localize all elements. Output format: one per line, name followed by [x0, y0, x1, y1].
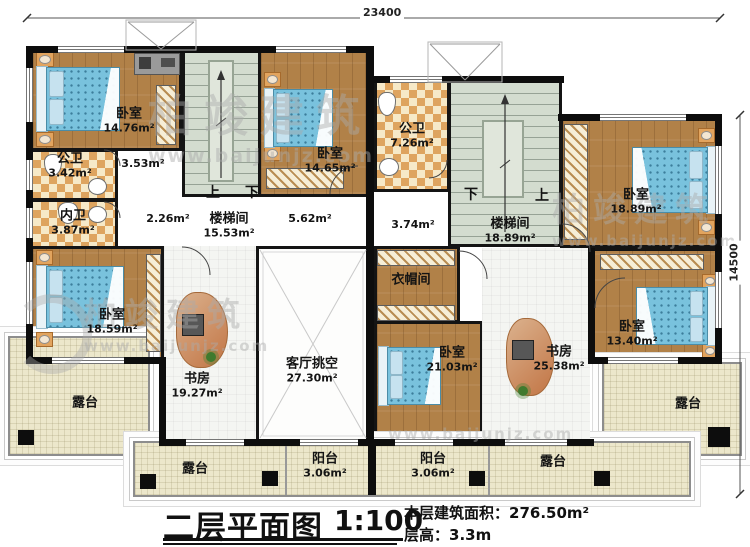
window-symbol: [390, 76, 442, 83]
window-symbol: [26, 68, 33, 122]
wall: [366, 46, 374, 446]
window-symbol: [505, 439, 567, 446]
strip-divider: [488, 443, 490, 495]
pillow: [49, 99, 64, 125]
floor-height-value: 3.3m: [449, 526, 491, 544]
pillow: [390, 351, 403, 375]
plan-info: 本层建筑面积：276.50m² 层高：3.3m: [404, 503, 589, 547]
plant-icon: [206, 352, 216, 362]
label-stair-left-up: 上: [206, 182, 220, 202]
label-terrace-bottom-left: 露台: [182, 463, 208, 478]
window-symbol: [26, 160, 33, 190]
floor-area-value: 276.50m²: [509, 504, 589, 522]
label-terrace-left: 露台: [72, 397, 98, 412]
window-symbol: [715, 146, 722, 214]
pillow: [276, 119, 290, 143]
label-study-right: 书房25.38m²: [533, 346, 584, 373]
window-symbol: [276, 46, 346, 53]
nightstand: [264, 146, 281, 161]
floor-plan-canvas: 柏竣建筑 www.baijunjz.com 柏竣建筑 www.baijunjz.…: [0, 0, 750, 547]
column: [18, 430, 34, 445]
label-study-left: 书房19.27m²: [171, 373, 222, 400]
label-hall-226: 2.26m²: [146, 213, 189, 225]
pillow: [49, 71, 64, 97]
watermark-logo-circle: [12, 294, 92, 374]
wall: [159, 357, 166, 446]
stair-left-center-panel: [208, 60, 234, 182]
pillow: [689, 151, 703, 179]
nightstand: [36, 52, 54, 67]
label-hall-353: 3.53m²: [121, 158, 164, 170]
closet-symbol: [564, 124, 588, 240]
nightstand: [698, 220, 715, 235]
pillow: [390, 375, 403, 399]
room-living-void: [256, 246, 370, 443]
closet-symbol: [377, 250, 455, 266]
sink-symbol: [379, 158, 399, 176]
window-symbol: [715, 272, 722, 328]
label-bedroom-top-right: 卧室18.89m²: [610, 189, 661, 216]
label-stairwell-right: 楼梯间18.89m²: [484, 218, 535, 245]
window-symbol: [58, 46, 124, 53]
pillow: [690, 291, 703, 316]
nightstand: [264, 72, 281, 87]
floor-height-line: 层高：3.3m: [404, 525, 589, 547]
closet-symbol: [156, 85, 176, 145]
title-underline: [163, 538, 403, 541]
sink-symbol: [88, 178, 107, 195]
strip-divider: [285, 443, 287, 495]
nightstand: [36, 250, 53, 265]
column: [140, 474, 156, 489]
nightstand: [698, 128, 715, 143]
label-terrace-right: 露台: [675, 398, 701, 413]
dimension-top: 23400: [360, 6, 404, 19]
label-hall-562: 5.62m²: [288, 213, 331, 225]
label-bedroom-top-middle: 卧室14.65m²: [304, 148, 355, 175]
label-stair-right-up: 上: [535, 185, 549, 205]
label-living-void: 客厅挑空27.30m²: [286, 358, 338, 385]
nightstand: [36, 132, 54, 147]
window-symbol: [608, 357, 678, 364]
window-symbol: [600, 114, 686, 121]
closet-symbol: [377, 305, 455, 321]
plant-icon: [518, 386, 528, 396]
stair-right-center-panel: [482, 120, 524, 198]
strip-party-wall: [368, 443, 376, 495]
column: [469, 471, 485, 486]
label-hall-374: 3.74m²: [391, 219, 434, 231]
label-balcony-left: 阳台3.06m²: [303, 453, 346, 480]
label-terrace-bottom-right: 露台: [540, 456, 566, 471]
pillow: [690, 317, 703, 342]
label-bath-public-right: 公卫7.26m²: [390, 123, 433, 150]
label-stair-right-down: 下: [464, 184, 478, 204]
label-stairwell-left: 楼梯间15.53m²: [203, 213, 254, 240]
label-bath-public-left: 公卫3.42m²: [48, 153, 91, 180]
title-underline: [163, 543, 397, 545]
computer-monitor: [512, 340, 534, 360]
dimension-right: 14500: [728, 240, 741, 284]
label-balcony-right: 阳台3.06m²: [411, 453, 454, 480]
label-bedroom-bottom-right: 卧室13.40m²: [606, 321, 657, 348]
pillow: [49, 270, 63, 296]
pillow: [689, 181, 703, 209]
floor-area-line: 本层建筑面积：276.50m²: [404, 503, 589, 525]
closet-symbol: [146, 254, 161, 352]
label-cloakroom: 衣帽间: [391, 274, 430, 289]
window-symbol: [26, 208, 33, 238]
label-stair-left-down: 下: [245, 182, 259, 202]
label-bedroom-bottom-left: 卧室18.59m²: [86, 309, 137, 336]
label-bath-inner: 内卫3.87m²: [51, 210, 94, 237]
pillow: [276, 93, 290, 117]
computer-desk: [134, 53, 180, 75]
column: [262, 471, 278, 486]
window-symbol: [395, 439, 453, 446]
label-bedroom-bottom-middle: 卧室21.03m²: [426, 347, 477, 374]
column: [594, 471, 610, 486]
closet-symbol: [600, 254, 704, 270]
column: [708, 427, 730, 447]
label-bedroom-top-left: 卧室14.76m²: [103, 108, 154, 135]
wall: [588, 248, 595, 364]
window-symbol: [300, 439, 358, 446]
title-block: 二层平面图 1:100 本层建筑面积：276.50m² 层高：3.3m: [0, 498, 750, 547]
window-symbol: [186, 439, 244, 446]
computer-monitor: [182, 314, 204, 336]
